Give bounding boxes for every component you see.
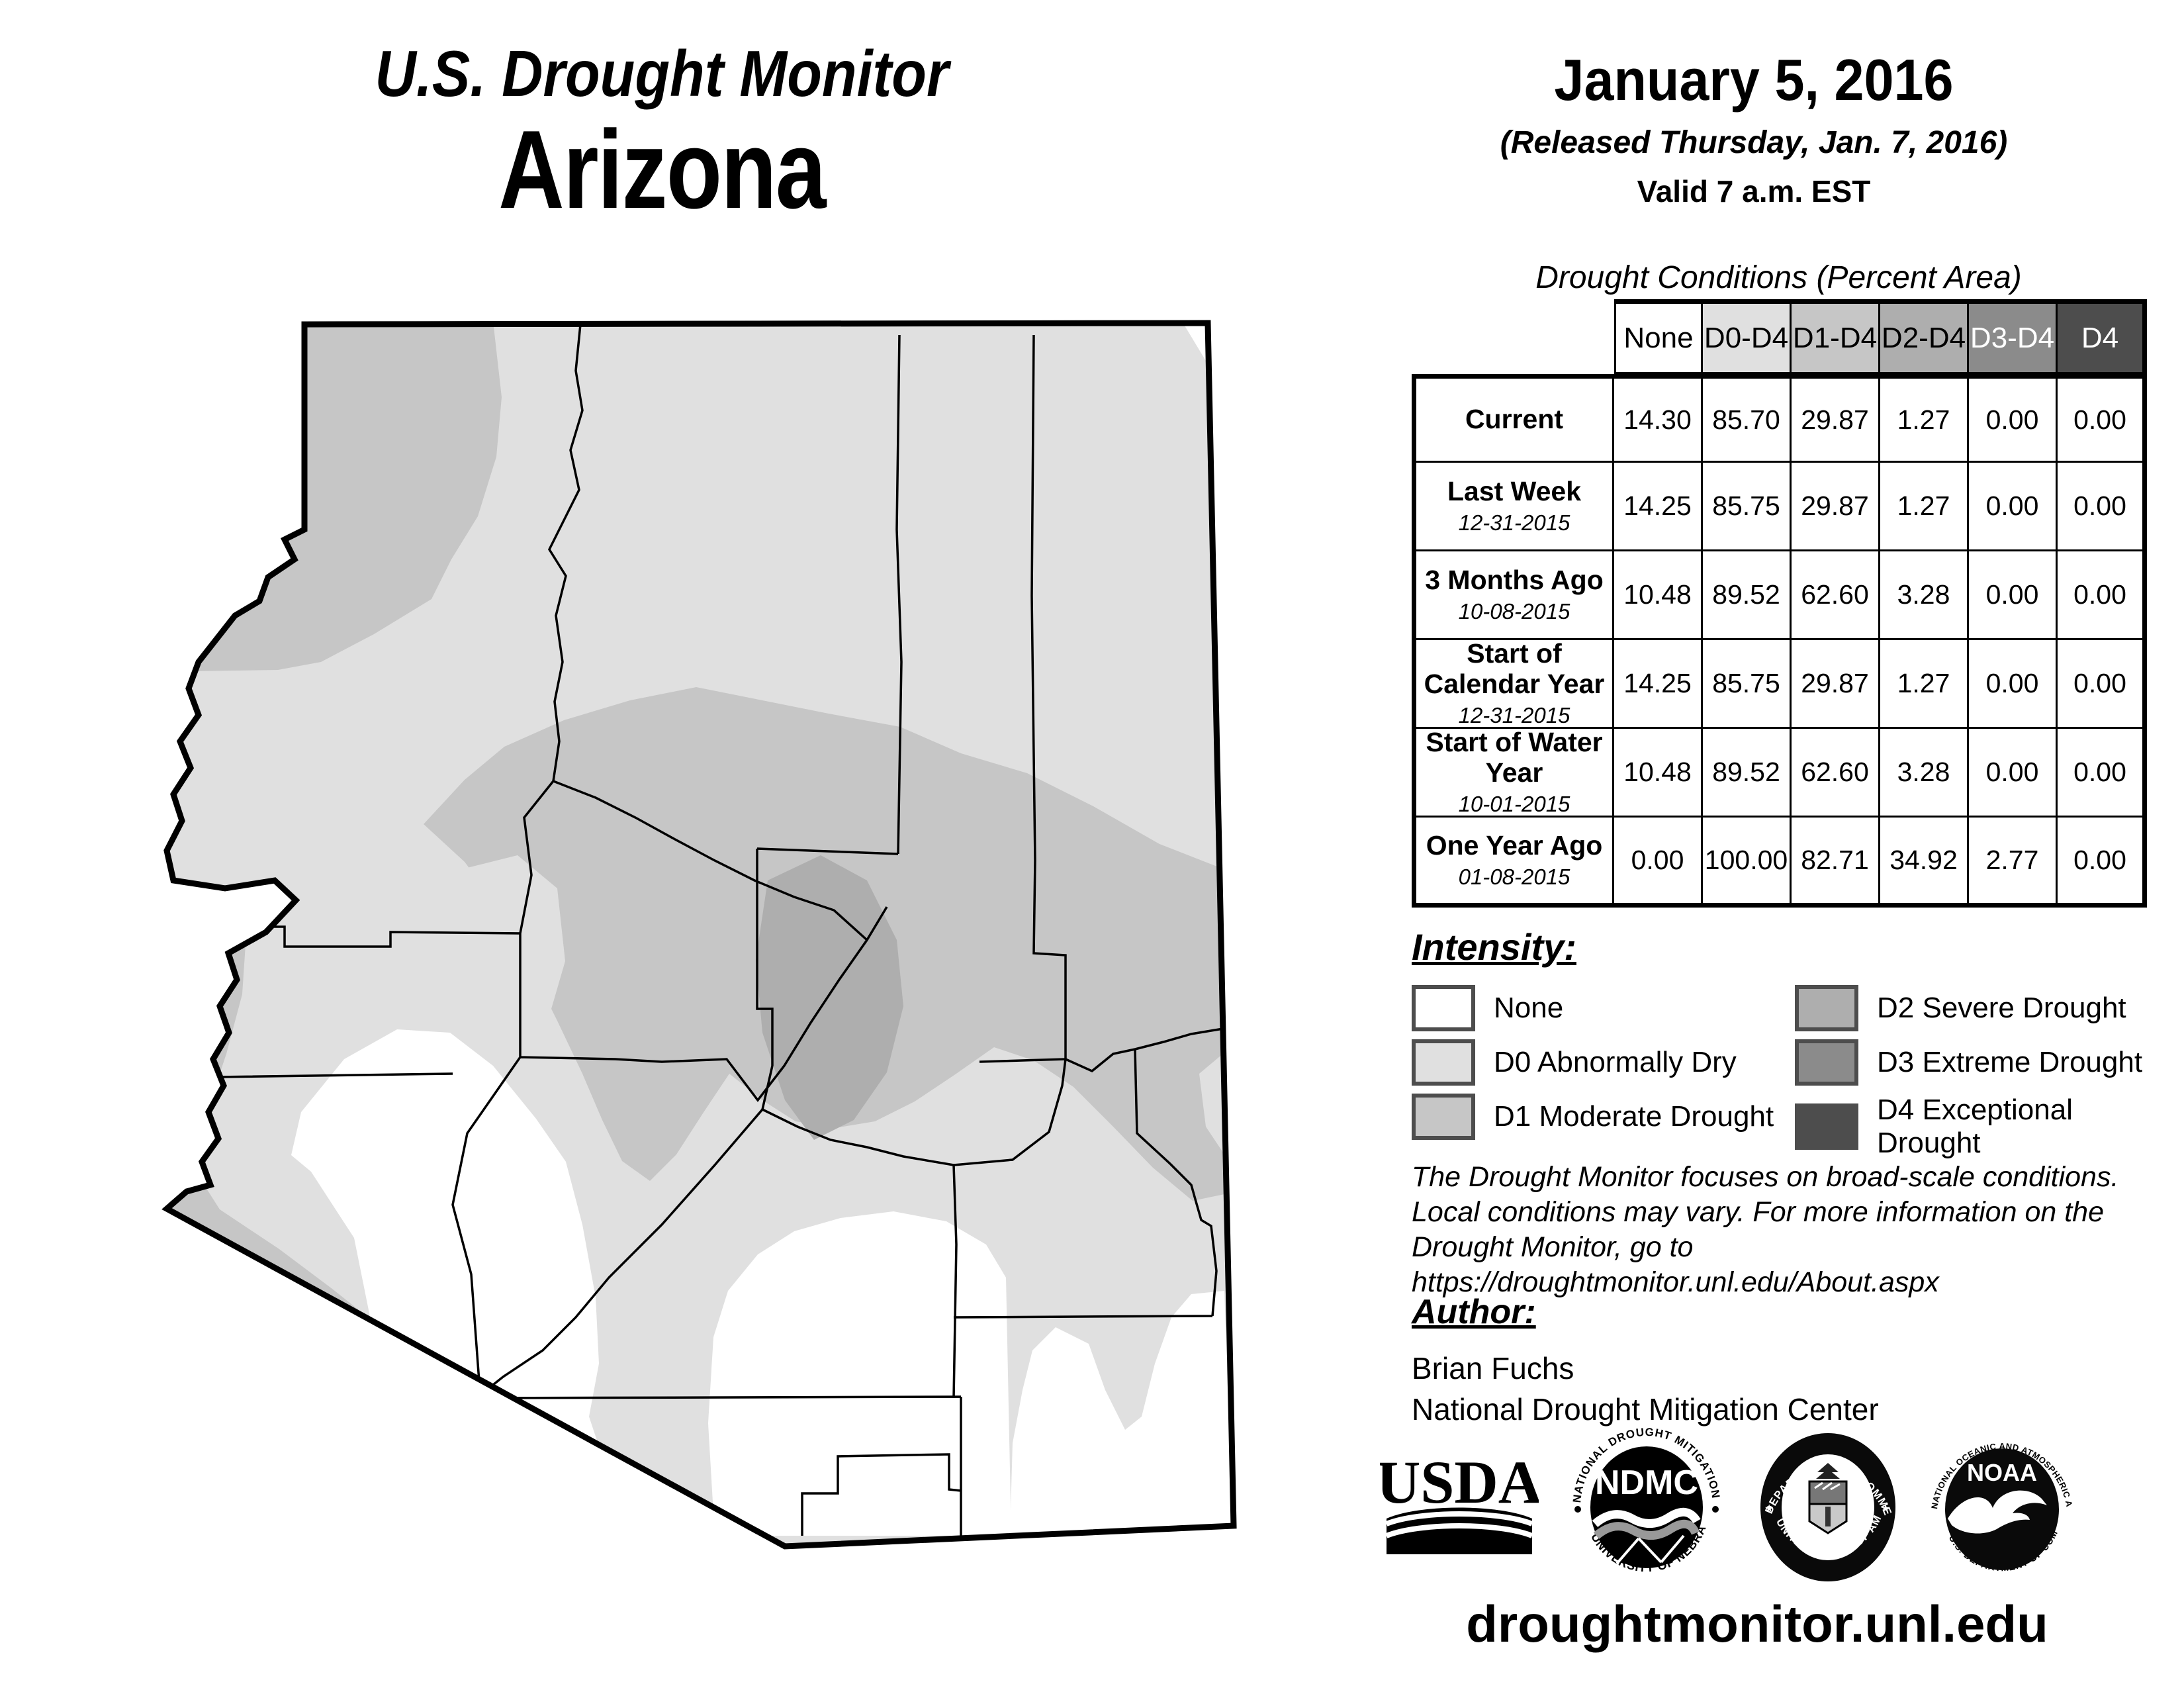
author-org: National Drought Mitigation Center [1412,1391,1879,1427]
legend-item-d1: D1 Moderate Drought [1412,1094,1774,1140]
footer-url: droughtmonitor.unl.edu [1350,1594,2164,1654]
released-date: (Released Thursday, Jan. 7, 2016) [1343,124,2164,161]
legend-item-d0: D0 Abnormally Dry [1412,1039,1737,1086]
table-value: 1.27 [1880,374,1969,463]
legend-swatch-d2 [1795,985,1858,1031]
table-value: 34.92 [1880,818,1969,908]
noaa-logo: NATIONAL OCEANIC AND ATMOSPHERIC ADMINIS… [1923,1425,2081,1590]
table-value: 29.87 [1792,463,1880,551]
state-name: Arizona [282,106,1042,234]
usda-logo-text: USDA [1380,1450,1539,1516]
table-value: 10.48 [1614,551,1703,640]
table-value: 0.00 [2058,551,2147,640]
report-date: January 5, 2016 [1377,46,2132,114]
row-label-text: One Year Ago [1426,831,1603,861]
author-name: Brian Fuchs [1412,1350,1574,1386]
table-value: 10.48 [1614,729,1703,818]
doc-star-right: ★ [1881,1503,1890,1515]
legend-swatch-d1 [1412,1094,1475,1140]
table-value: 0.00 [2058,729,2147,818]
legend-swatch-d0 [1412,1039,1475,1086]
department-of-commerce-seal: DEPARTMENT OF COMMERCE UNITED STATES OF … [1749,1425,1907,1590]
table-value: 0.00 [2058,640,2147,729]
disclaimer-line: The Drought Monitor focuses on broad-sca… [1412,1160,2179,1195]
col-header-none: None [1614,299,1703,374]
report-title: U.S. Drought Monitor [254,36,1069,111]
table-value: 14.25 [1614,640,1703,729]
legend-item-d2: D2 Severe Drought [1795,985,2126,1031]
col-header-d1d4: D1-D4 [1792,299,1880,374]
table-value: 3.28 [1880,551,1969,640]
table-value: 3.28 [1880,729,1969,818]
table-header-blank [1412,299,1614,374]
legend-swatch-d4 [1795,1103,1858,1150]
table-value: 14.30 [1614,374,1703,463]
row-label-date: 01-08-2015 [1459,865,1570,890]
table-value: 0.00 [1969,374,2058,463]
row-label-date: 10-01-2015 [1459,792,1570,817]
table-value: 14.25 [1614,463,1703,551]
table-value: 1.27 [1880,640,1969,729]
col-header-d2d4: D2-D4 [1880,299,1969,374]
row-label: Start of Calendar Year12-31-2015 [1412,640,1614,729]
table-value: 62.60 [1792,551,1880,640]
noaa-center-text: NOAA [1967,1459,2037,1486]
table-value: 100.00 [1703,818,1792,908]
table-value: 89.52 [1703,729,1792,818]
table-value: 85.75 [1703,463,1792,551]
legend-label: D0 Abnormally Dry [1494,1046,1737,1079]
row-label: One Year Ago01-08-2015 [1412,818,1614,908]
doc-star-left: ★ [1764,1503,1774,1515]
drought-monitor-report: U.S. Drought Monitor Arizona January 5, … [0,0,2184,1688]
legend-label: D3 Extreme Drought [1877,1046,2142,1079]
table-value: 0.00 [2058,818,2147,908]
row-label: Start of Water Year10-01-2015 [1412,729,1614,818]
row-label-text: Last Week [1447,477,1581,507]
table-value: 0.00 [2058,463,2147,551]
legend-item-d3: D3 Extreme Drought [1795,1039,2142,1086]
table-value: 29.87 [1792,640,1880,729]
row-label-text: Current [1465,404,1563,435]
table-value: 85.75 [1703,640,1792,729]
table-value: 82.71 [1792,818,1880,908]
disclaimer-line: Local conditions may vary. For more info… [1412,1195,2179,1230]
row-label-date: 10-08-2015 [1459,600,1570,624]
disclaimer-line: Drought Monitor, go to https://droughtmo… [1412,1230,2179,1300]
row-label-date: 12-31-2015 [1459,704,1570,728]
table-value: 0.00 [1969,463,2058,551]
table-value: 0.00 [1969,729,2058,818]
table-value: 0.00 [1969,551,2058,640]
drought-conditions-table: None D0-D4 D1-D4 D2-D4 D3-D4 D4 Current … [1412,299,2147,908]
row-label: Last Week12-31-2015 [1412,463,1614,551]
legend-label: None [1494,992,1563,1025]
legend-swatch-d3 [1795,1039,1858,1086]
col-header-d4: D4 [2058,299,2147,374]
legend-label: D2 Severe Drought [1877,992,2126,1025]
legend-item-d4: D4 Exceptional Drought [1795,1094,2184,1160]
table-value: 0.00 [2058,374,2147,463]
author-title: Author: [1412,1292,1536,1332]
legend-label: D1 Moderate Drought [1494,1100,1774,1133]
table-value: 0.00 [1969,640,2058,729]
col-header-d3d4: D3-D4 [1969,299,2058,374]
row-label: 3 Months Ago10-08-2015 [1412,551,1614,640]
row-label-date: 12-31-2015 [1459,511,1570,536]
table-value: 2.77 [1969,818,2058,908]
disclaimer: The Drought Monitor focuses on broad-sca… [1412,1160,2179,1300]
row-label-text: Start of Calendar Year [1416,639,1612,700]
usda-logo: USDA [1380,1450,1539,1559]
table-value: 62.60 [1792,729,1880,818]
valid-time: Valid 7 a.m. EST [1343,173,2164,209]
table-value: 0.00 [1614,818,1703,908]
row-label: Current [1412,374,1614,463]
ndmc-logo: NATIONAL DROUGHT MITIGATION CENTER UNIVE… [1567,1425,1726,1590]
table-value: 89.52 [1703,551,1792,640]
legend-item-none: None [1412,985,1563,1031]
legend-title: Intensity: [1412,925,1576,968]
table-value: 1.27 [1880,463,1969,551]
table-value: 29.87 [1792,374,1880,463]
table-value: 85.70 [1703,374,1792,463]
table-title: Drought Conditions (Percent Area) [1410,259,2148,296]
ndmc-center-text: NDMC [1595,1464,1698,1502]
row-label-text: Start of Water Year [1416,727,1612,788]
map-none-southcentral [708,1211,1011,1536]
row-label-text: 3 Months Ago [1425,565,1604,596]
legend-label: D4 Exceptional Drought [1877,1094,2184,1160]
legend-swatch-none [1412,985,1475,1031]
col-header-d0d4: D0-D4 [1703,299,1792,374]
